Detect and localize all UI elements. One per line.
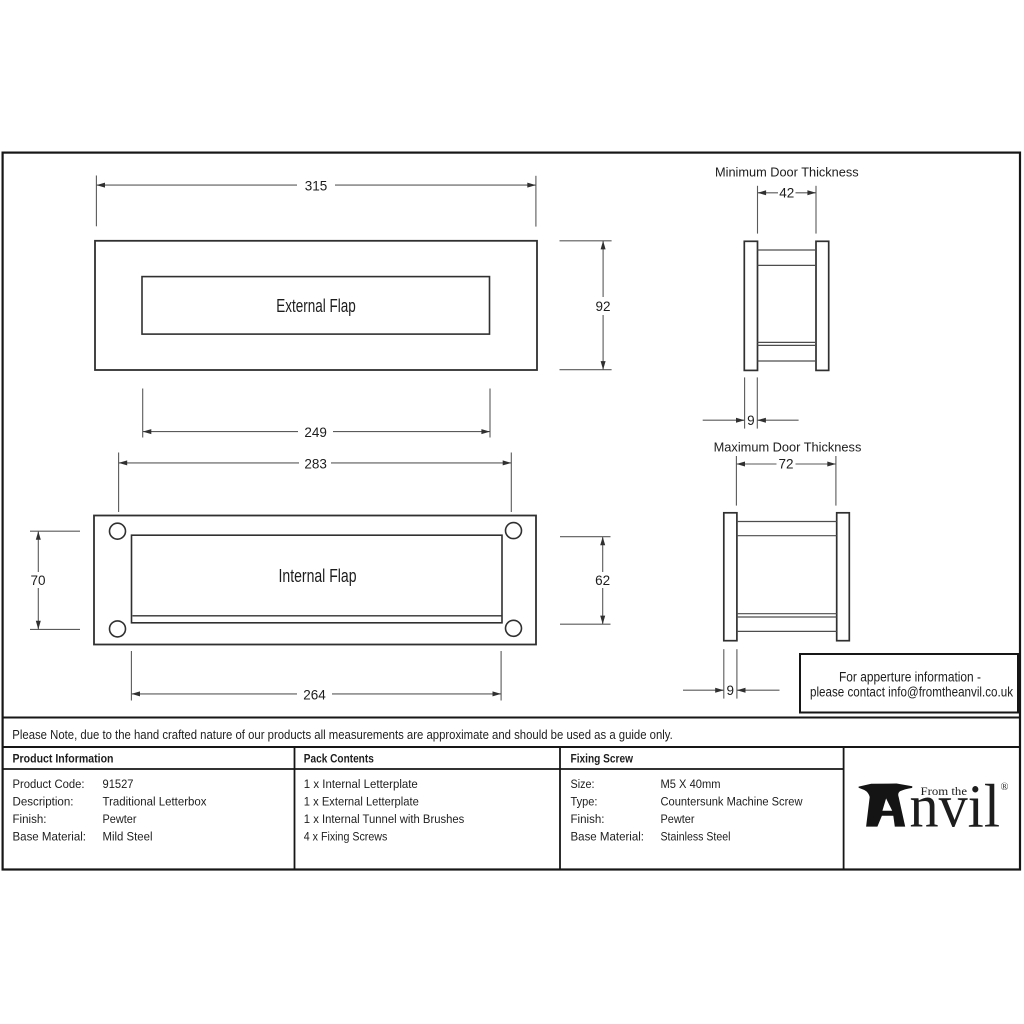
svg-text:Mild Steel: Mild Steel bbox=[103, 829, 153, 843]
svg-text:72: 72 bbox=[778, 457, 793, 472]
svg-text:Maximum Door Thickness: Maximum Door Thickness bbox=[714, 439, 862, 454]
svg-text:70: 70 bbox=[30, 573, 45, 588]
svg-text:Countersunk Machine Screw: Countersunk Machine Screw bbox=[661, 795, 803, 809]
svg-text:91527: 91527 bbox=[103, 777, 134, 791]
svg-text:Traditional Letterbox: Traditional Letterbox bbox=[103, 795, 208, 809]
svg-text:62: 62 bbox=[595, 573, 610, 588]
svg-text:Pewter: Pewter bbox=[103, 812, 137, 826]
svg-text:Internal Flap: Internal Flap bbox=[279, 566, 357, 586]
svg-text:315: 315 bbox=[305, 179, 328, 194]
svg-text:M5 X 40mm: M5 X 40mm bbox=[661, 777, 721, 791]
svg-text:92: 92 bbox=[595, 299, 610, 314]
svg-text:Stainless Steel: Stainless Steel bbox=[661, 829, 731, 843]
svg-text:4 x Fixing Screws: 4 x Fixing Screws bbox=[304, 829, 388, 843]
svg-text:nvil: nvil bbox=[910, 773, 1001, 841]
svg-text:Finish:: Finish: bbox=[571, 812, 605, 826]
svg-text:For apperture information -: For apperture information - bbox=[839, 670, 981, 685]
svg-text:From the: From the bbox=[921, 786, 968, 798]
svg-text:283: 283 bbox=[304, 456, 327, 471]
svg-text:1 x Internal Letterplate: 1 x Internal Letterplate bbox=[304, 777, 418, 791]
svg-text:9: 9 bbox=[747, 413, 755, 428]
svg-text:9: 9 bbox=[726, 683, 734, 698]
svg-text:Product Information: Product Information bbox=[13, 751, 114, 765]
svg-text:Product Code:: Product Code: bbox=[13, 777, 85, 791]
svg-text:1 x Internal Tunnel with Brush: 1 x Internal Tunnel with Brushes bbox=[304, 812, 465, 826]
svg-text:42: 42 bbox=[779, 185, 794, 200]
svg-text:External Flap: External Flap bbox=[276, 296, 356, 316]
svg-text:Minimum Door Thickness: Minimum Door Thickness bbox=[715, 164, 859, 179]
svg-text:Type:: Type: bbox=[571, 795, 598, 809]
svg-text:1 x External Letterplate: 1 x External Letterplate bbox=[304, 795, 419, 809]
svg-text:Pack Contents: Pack Contents bbox=[304, 751, 374, 765]
svg-text:Pewter: Pewter bbox=[661, 812, 695, 826]
svg-text:please contact info@fromtheanv: please contact info@fromtheanvil.co.uk bbox=[810, 684, 1013, 699]
svg-text:Description:: Description: bbox=[13, 795, 74, 809]
svg-text:Size:: Size: bbox=[571, 777, 595, 791]
svg-text:249: 249 bbox=[304, 425, 327, 440]
svg-text:Base Material:: Base Material: bbox=[571, 829, 645, 843]
svg-text:Fixing Screw: Fixing Screw bbox=[571, 751, 634, 765]
svg-text:Base Material:: Base Material: bbox=[13, 829, 87, 843]
svg-text:Please Note, due to the hand c: Please Note, due to the hand crafted nat… bbox=[12, 728, 673, 742]
svg-text:Finish:: Finish: bbox=[13, 812, 47, 826]
svg-text:264: 264 bbox=[303, 687, 326, 702]
svg-text:®: ® bbox=[1001, 782, 1009, 793]
